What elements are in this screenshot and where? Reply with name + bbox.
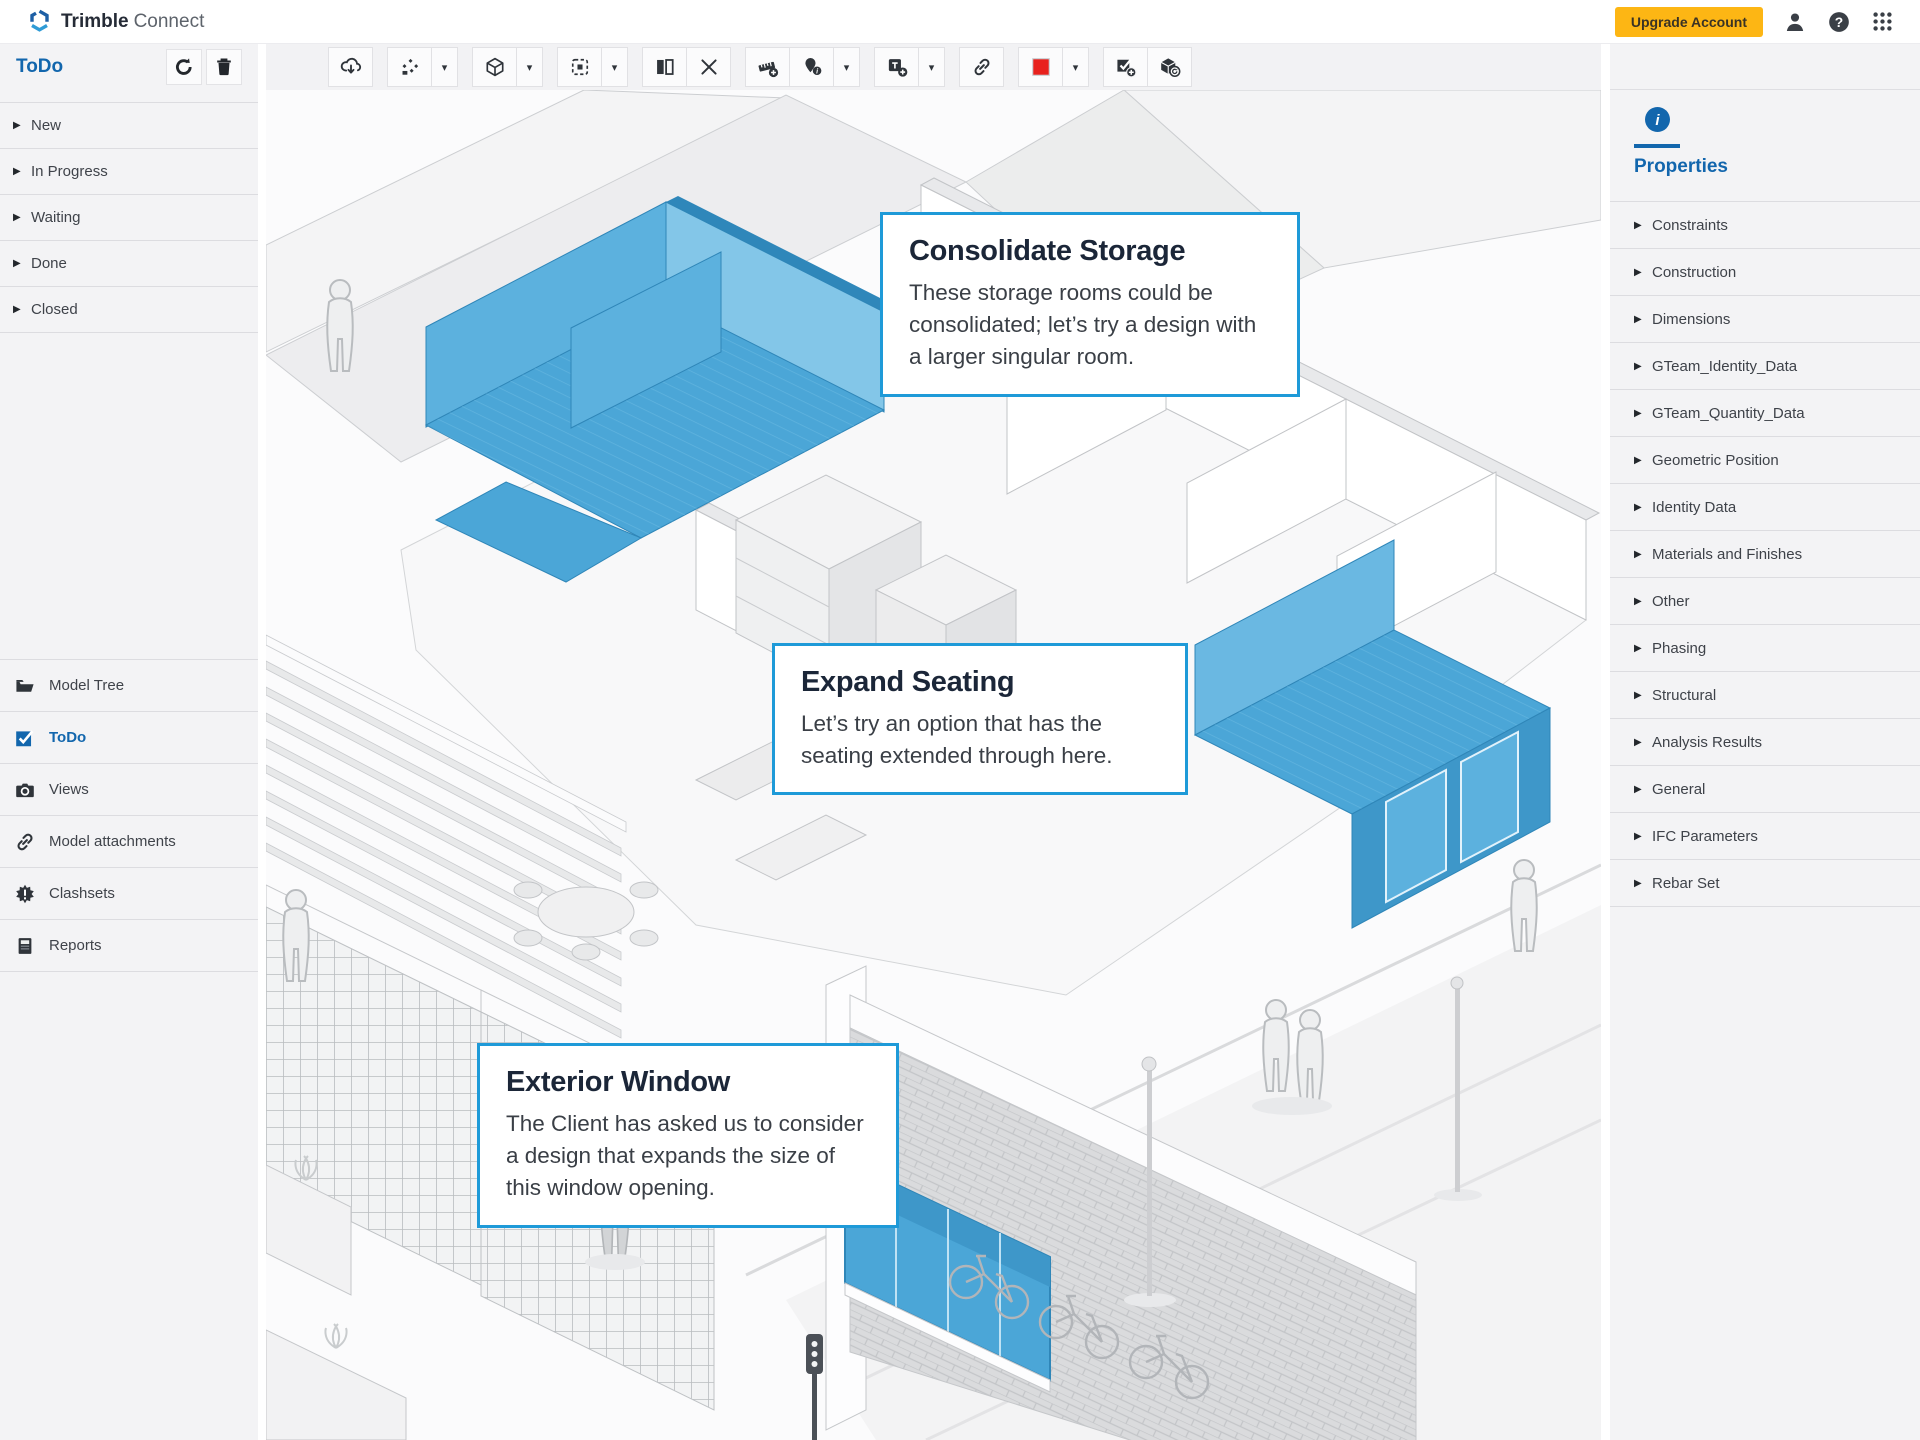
status-label: Done	[31, 255, 67, 272]
caret-down-icon: ▾	[612, 61, 618, 74]
property-section-rebar-set[interactable]: ▶ Rebar Set	[1610, 860, 1920, 907]
app-header: Trimble Connect Upgrade Account ?	[0, 0, 1920, 44]
properties-title: Properties	[1634, 156, 1728, 178]
callout-consolidate-storage[interactable]: Consolidate Storage These storage rooms …	[880, 212, 1300, 397]
attach-link-button[interactable]	[959, 47, 1004, 87]
markup-tools-dropdown[interactable]: ▾	[431, 47, 458, 87]
property-section-ifc-parameters[interactable]: ▶ IFC Parameters	[1610, 813, 1920, 860]
help-icon[interactable]: ?	[1827, 10, 1851, 34]
status-row-new[interactable]: ▶ New	[0, 103, 258, 149]
close-split-button[interactable]	[686, 47, 731, 87]
callout-body: These storage rooms could be consolidate…	[909, 277, 1271, 374]
properties-panel-band	[1610, 44, 1920, 90]
refresh-icon	[173, 56, 195, 78]
sidebar-item-model-tree[interactable]: Model Tree	[0, 660, 258, 712]
property-section-label: General	[1652, 781, 1705, 798]
status-label: New	[31, 117, 61, 134]
sidebar-item-label: Model Tree	[49, 677, 124, 694]
callout-exterior-window[interactable]: Exterior Window The Client has asked us …	[477, 1043, 899, 1228]
caret-right-icon: ▶	[1634, 784, 1652, 795]
pin-info-button[interactable]: i	[789, 47, 834, 87]
property-section-label: Materials and Finishes	[1652, 546, 1802, 563]
caret-right-icon: ▶	[1634, 267, 1652, 278]
active-tab-indicator	[1634, 144, 1680, 148]
help-question-glyph: ?	[1835, 15, 1843, 30]
callout-expand-seating[interactable]: Expand Seating Let’s try an option that …	[772, 643, 1188, 795]
status-row-done[interactable]: ▶ Done	[0, 241, 258, 287]
caret-right-icon: ▶	[1634, 643, 1652, 654]
sidebar-item-model-attachments[interactable]: Model attachments	[0, 816, 258, 868]
camera-icon	[14, 779, 36, 801]
brand-name-bold: Trimble	[61, 11, 129, 33]
caret-down-icon: ▾	[929, 61, 935, 74]
focus-target-button[interactable]	[557, 47, 602, 87]
refresh-button[interactable]	[166, 49, 202, 85]
trimble-logo-icon	[26, 8, 53, 35]
sidebar-item-label: Views	[49, 781, 89, 798]
property-section-label: IFC Parameters	[1652, 828, 1758, 845]
view-cube-icon	[484, 56, 506, 78]
model-viewport[interactable]: Consolidate Storage These storage rooms …	[266, 90, 1601, 1440]
focus-target-dropdown[interactable]: ▾	[601, 47, 628, 87]
property-section-label: Analysis Results	[1652, 734, 1762, 751]
measure-add-button[interactable]	[745, 47, 790, 87]
caret-right-icon: ▶	[13, 304, 31, 315]
caret-right-icon: ▶	[1634, 220, 1652, 231]
markup-color-button[interactable]	[1018, 47, 1063, 87]
view-cube-button[interactable]	[472, 47, 517, 87]
property-section-gteam-quantity-data[interactable]: ▶ GTeam_Quantity_Data	[1610, 390, 1920, 437]
caret-right-icon: ▶	[13, 258, 31, 269]
property-section-phasing[interactable]: ▶ Phasing	[1610, 625, 1920, 672]
property-section-gteam-identity-data[interactable]: ▶ GTeam_Identity_Data	[1610, 343, 1920, 390]
color-swatch-icon	[1030, 56, 1052, 78]
sidebar-item-views[interactable]: Views	[0, 764, 258, 816]
property-section-construction[interactable]: ▶ Construction	[1610, 249, 1920, 296]
link-icon	[971, 56, 993, 78]
viewer-toolbar: ▾ ▾ ▾	[266, 44, 1601, 90]
properties-panel: i Properties ▶ Constraints ▶ Constructio…	[1610, 44, 1920, 1440]
caret-down-icon: ▾	[442, 61, 448, 74]
upgrade-account-button[interactable]: Upgrade Account	[1615, 7, 1763, 37]
info-icon: i	[1644, 106, 1671, 133]
text-add-icon	[886, 56, 908, 78]
status-row-in-progress[interactable]: ▶ In Progress	[0, 149, 258, 195]
sidebar-item-label: Reports	[49, 937, 102, 954]
brand-name-light: Connect	[134, 11, 205, 33]
caret-down-icon: ▾	[1073, 61, 1079, 74]
caret-down-icon: ▾	[844, 61, 850, 74]
trash-icon	[213, 56, 235, 78]
property-section-label: Structural	[1652, 687, 1716, 704]
callout-title: Expand Seating	[801, 666, 1159, 699]
property-section-label: Phasing	[1652, 640, 1706, 657]
apps-grid-icon[interactable]	[1871, 10, 1894, 33]
add-todo-button[interactable]	[1103, 47, 1148, 87]
caret-right-icon: ▶	[13, 212, 31, 223]
sidebar-item-label: ToDo	[49, 729, 86, 746]
measure-add-icon	[757, 56, 779, 78]
pin-info-dropdown[interactable]: ▾	[833, 47, 860, 87]
status-row-closed[interactable]: ▶ Closed	[0, 287, 258, 333]
property-section-label: Identity Data	[1652, 499, 1736, 516]
property-section-label: Construction	[1652, 264, 1736, 281]
caret-right-icon: ▶	[1634, 361, 1652, 372]
todo-panel-title: ToDo	[16, 56, 63, 78]
clash-burst-icon	[14, 883, 36, 905]
property-section-structural[interactable]: ▶ Structural	[1610, 672, 1920, 719]
caret-right-icon: ▶	[1634, 596, 1652, 607]
property-section-identity-data[interactable]: ▶ Identity Data	[1610, 484, 1920, 531]
todo-panel-header: ToDo	[0, 44, 258, 90]
caret-right-icon: ▶	[1634, 831, 1652, 842]
sidebar-item-label: Model attachments	[49, 833, 176, 850]
property-section-label: Constraints	[1652, 217, 1728, 234]
caret-right-icon: ▶	[1634, 314, 1652, 325]
callout-body: Let’s try an option that has the seating…	[801, 708, 1159, 772]
callout-body: The Client has asked us to consider a de…	[506, 1108, 870, 1205]
todo-status-list: ▶ New ▶ In Progress ▶ Waiting ▶ Done ▶ C…	[0, 102, 258, 333]
markup-color-dropdown[interactable]: ▾	[1062, 47, 1089, 87]
property-section-label: Dimensions	[1652, 311, 1730, 328]
caret-right-icon: ▶	[1634, 408, 1652, 419]
folder-icon	[14, 675, 36, 697]
property-section-dimensions[interactable]: ▶ Dimensions	[1610, 296, 1920, 343]
property-section-other[interactable]: ▶ Other	[1610, 578, 1920, 625]
property-section-label: GTeam_Identity_Data	[1652, 358, 1797, 375]
markup-tools-button[interactable]	[387, 47, 432, 87]
caret-right-icon: ▶	[1634, 878, 1652, 889]
caret-right-icon: ▶	[1634, 455, 1652, 466]
sidebar-item-reports[interactable]: Reports	[0, 920, 258, 972]
property-section-label: Geometric Position	[1652, 452, 1779, 469]
property-section-label: Rebar Set	[1652, 875, 1720, 892]
callout-title: Consolidate Storage	[909, 235, 1271, 268]
sidebar-item-todo[interactable]: ToDo	[0, 712, 258, 764]
property-section-constraints[interactable]: ▶ Constraints	[1610, 202, 1920, 249]
status-label: Waiting	[31, 209, 80, 226]
todo-add-icon	[1115, 56, 1137, 78]
status-label: Closed	[31, 301, 78, 318]
properties-section-list: ▶ Constraints ▶ Construction ▶ Dimension…	[1610, 201, 1920, 907]
focus-target-icon	[569, 56, 591, 78]
report-book-icon	[14, 935, 36, 957]
split-view-button[interactable]	[642, 47, 687, 87]
sidebar-item-clashsets[interactable]: Clashsets	[0, 868, 258, 920]
split-view-icon	[654, 56, 676, 78]
header-actions: Upgrade Account ?	[1615, 7, 1920, 37]
caret-right-icon: ▶	[1634, 502, 1652, 513]
status-label: In Progress	[31, 163, 108, 180]
callout-title: Exterior Window	[506, 1066, 870, 1099]
status-row-waiting[interactable]: ▶ Waiting	[0, 195, 258, 241]
cloud-download-icon	[340, 56, 362, 78]
property-section-label: GTeam_Quantity_Data	[1652, 405, 1805, 422]
tab-info[interactable]: i	[1634, 106, 1680, 148]
trimble-logo[interactable]: Trimble Connect	[26, 8, 204, 35]
caret-right-icon: ▶	[13, 120, 31, 131]
property-section-general[interactable]: ▶ General	[1610, 766, 1920, 813]
property-section-geometric-position[interactable]: ▶ Geometric Position	[1610, 437, 1920, 484]
caret-right-icon: ▶	[1634, 549, 1652, 560]
todo-check-icon	[14, 727, 36, 749]
model-sync-icon	[1159, 56, 1181, 78]
delete-button[interactable]	[206, 49, 242, 85]
link-icon	[14, 831, 36, 853]
caret-right-icon: ▶	[1634, 737, 1652, 748]
text-add-dropdown[interactable]: ▾	[918, 47, 945, 87]
pin-info-icon: i	[801, 56, 823, 78]
caret-right-icon: ▶	[1634, 690, 1652, 701]
text-add-button[interactable]	[874, 47, 919, 87]
caret-down-icon: ▾	[527, 61, 533, 74]
todo-panel: ToDo ▶ New	[0, 44, 258, 1440]
view-cube-dropdown[interactable]: ▾	[516, 47, 543, 87]
sync-model-button[interactable]	[328, 47, 373, 87]
property-section-analysis-results[interactable]: ▶ Analysis Results	[1610, 719, 1920, 766]
property-section-label: Other	[1652, 593, 1690, 610]
sidebar-nav: Model Tree ToDo Views	[0, 659, 258, 972]
sidebar-item-label: Clashsets	[49, 885, 115, 902]
close-icon	[698, 56, 720, 78]
model-sync-state-button[interactable]	[1147, 47, 1192, 87]
markup-tools-icon	[399, 56, 421, 78]
model-viewer: ▾ ▾ ▾	[266, 44, 1601, 1440]
trimble-connect-app: Trimble Connect Upgrade Account ?	[0, 0, 1920, 1440]
caret-right-icon: ▶	[13, 166, 31, 177]
user-icon[interactable]	[1783, 10, 1807, 34]
property-section-materials-and-finishes[interactable]: ▶ Materials and Finishes	[1610, 531, 1920, 578]
